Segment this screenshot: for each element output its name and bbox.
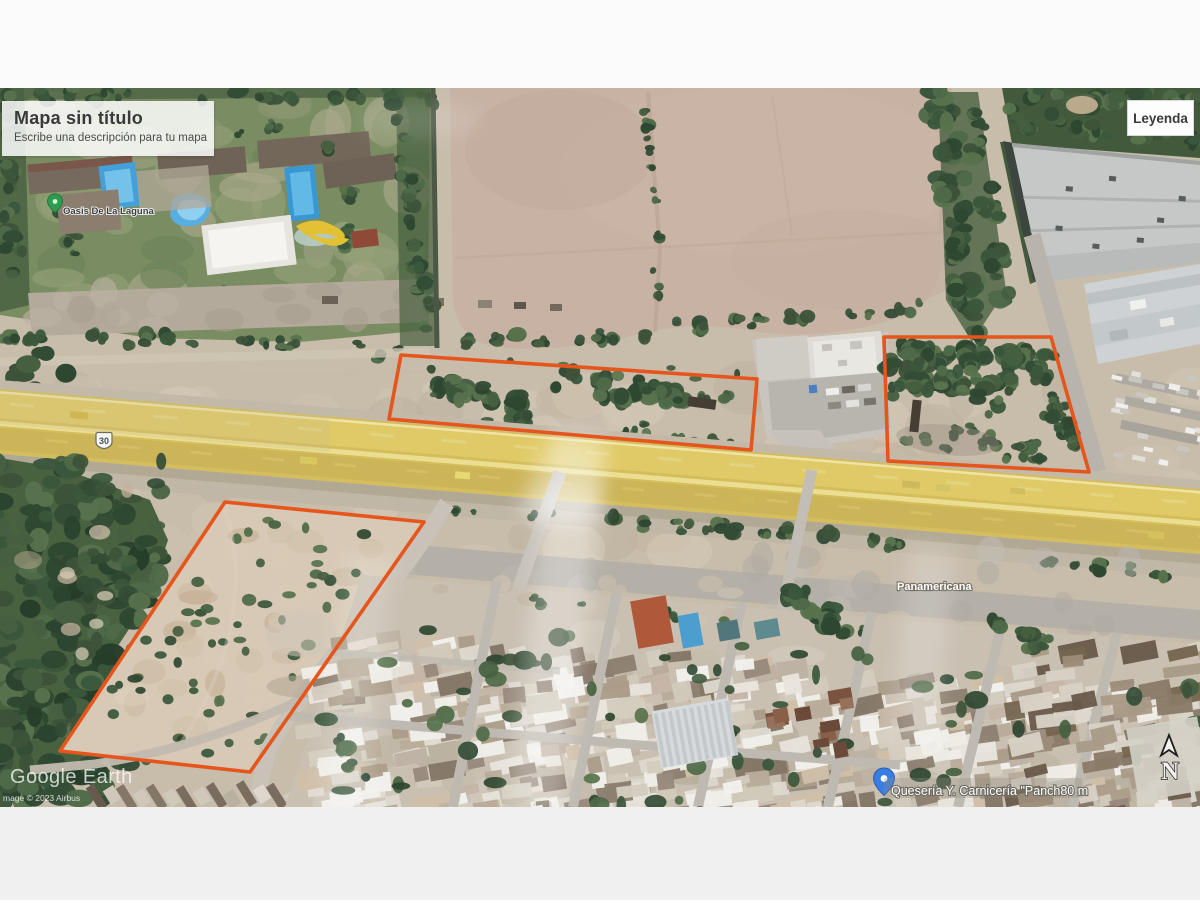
svg-text:Quesería Y. Carnicería "Panch8: Quesería Y. Carnicería "Panch80 m (891, 784, 1088, 798)
svg-text:30: 30 (99, 436, 109, 446)
svg-text:Google Earth: Google Earth (10, 766, 133, 788)
svg-text:Panamericana: Panamericana (897, 581, 972, 593)
svg-text:N: N (1161, 758, 1179, 785)
svg-text:Oasis De La Laguna: Oasis De La Laguna (63, 206, 155, 217)
svg-text:mage © 2023 Airbus: mage © 2023 Airbus (3, 793, 80, 803)
